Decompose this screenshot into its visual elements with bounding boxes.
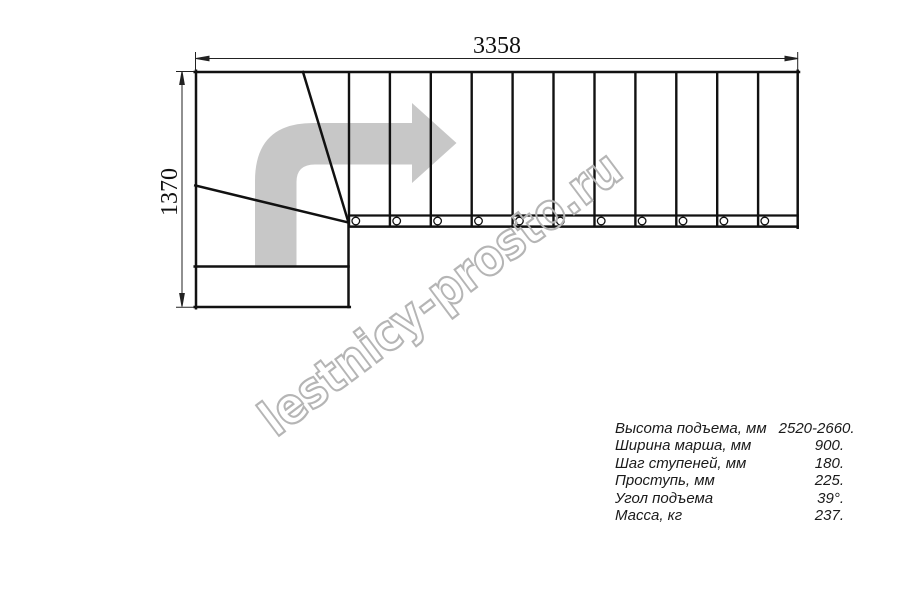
- spec-label: Масса, кг: [615, 507, 682, 524]
- direction-arrow-icon: [255, 103, 457, 266]
- spec-label: Шаг ступеней, мм: [615, 455, 746, 472]
- spec-value: 39°.: [817, 490, 844, 507]
- spec-row-mass: Масса, кг 237.: [615, 507, 844, 524]
- watermark-text: lestnicy-prosto.ru: [248, 139, 632, 448]
- spec-value: 900.: [815, 437, 844, 454]
- spec-value: 237.: [815, 507, 844, 524]
- spec-row-rise-angle: Угол подъема 39°.: [615, 490, 844, 507]
- spec-label: Угол подъема: [615, 490, 713, 507]
- spec-value: 225.: [815, 472, 844, 489]
- top-dimension-label: 3358: [473, 33, 521, 59]
- spec-row-tread-depth: Проступь, мм 225.: [615, 472, 844, 489]
- spec-row-rise-height: Высота подъема, мм 2520-2660.: [615, 420, 844, 437]
- spec-row-step-pitch: Шаг ступеней, мм 180.: [615, 455, 844, 472]
- spec-value: 180.: [815, 455, 844, 472]
- specs-table: Высота подъема, мм 2520-2660. Ширина мар…: [615, 420, 844, 524]
- spec-label: Высота подъема, мм: [615, 420, 767, 437]
- spec-label: Ширина марша, мм: [615, 437, 751, 454]
- stair-plan-page: 3358 1370 lestnicy-prosto.ru Высота подъ…: [0, 0, 900, 600]
- spec-value: 2520-2660.: [779, 420, 855, 437]
- left-dimension-label: 1370: [157, 168, 183, 216]
- spec-label: Проступь, мм: [615, 472, 715, 489]
- spec-row-flight-width: Ширина марша, мм 900.: [615, 437, 844, 454]
